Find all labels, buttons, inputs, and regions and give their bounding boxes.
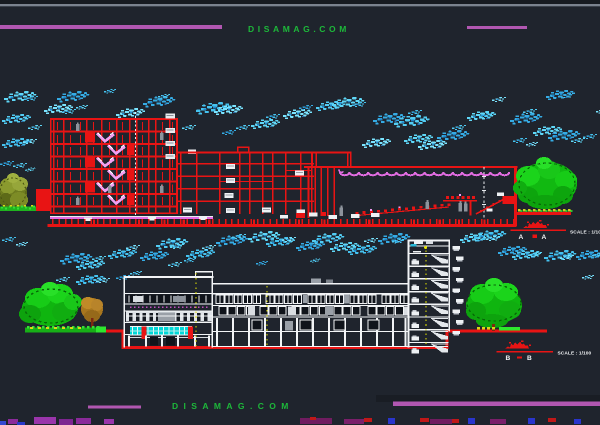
svg-text:DISAMAG.COM: DISAMAG.COM: [248, 24, 350, 34]
svg-text:SCALE : 1/100: SCALE : 1/100: [570, 229, 600, 235]
svg-text:DISAMAG.COM: DISAMAG.COM: [172, 401, 294, 411]
svg-text:B: B: [506, 355, 511, 362]
svg-text:A: A: [519, 234, 524, 241]
svg-text:B: B: [527, 355, 532, 362]
svg-text:SCALE : 1/100: SCALE : 1/100: [558, 351, 592, 357]
svg-text:A: A: [542, 234, 547, 241]
